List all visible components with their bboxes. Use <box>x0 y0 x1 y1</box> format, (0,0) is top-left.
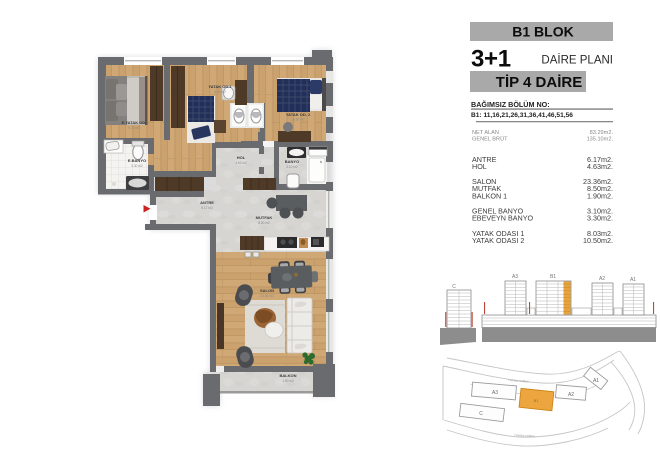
svg-text:A2: A2 <box>568 392 574 398</box>
svg-text:ANTRE: ANTRE <box>200 200 214 205</box>
svg-text:E.BANYO: E.BANYO <box>128 158 146 163</box>
svg-text:10.50m2.: 10.50m2. <box>583 236 613 245</box>
svg-text:A3: A3 <box>512 274 518 280</box>
svg-text:B1: 11,16,21,26,31,36,41,46,51: B1: 11,16,21,26,31,36,41,46,51,56 <box>471 112 573 119</box>
svg-text:83.29m2.: 83.29m2. <box>590 130 614 136</box>
svg-text:MUTFAK: MUTFAK <box>256 215 273 220</box>
svg-text:B1 BLOK: B1 BLOK <box>512 24 573 40</box>
svg-text:3.30m2.: 3.30m2. <box>587 214 613 223</box>
svg-text:3+1: 3+1 <box>471 46 511 73</box>
svg-text:B1: B1 <box>534 399 538 403</box>
svg-text:4.63m2.: 4.63m2. <box>587 162 613 171</box>
svg-text:135.10m2.: 135.10m2. <box>587 137 614 143</box>
svg-text:YATAK ODASI 2: YATAK ODASI 2 <box>472 236 524 245</box>
svg-text:1.90 m2: 1.90 m2 <box>282 379 294 383</box>
svg-text:8.50 m2: 8.50 m2 <box>258 221 270 225</box>
svg-text:1.90m2.: 1.90m2. <box>587 191 613 200</box>
svg-text:BALKON: BALKON <box>279 373 296 378</box>
svg-text:3.30 m2: 3.30 m2 <box>131 164 143 168</box>
svg-text:GENEL BRÜT: GENEL BRÜT <box>472 136 508 143</box>
svg-text:BANYO: BANYO <box>285 159 299 164</box>
svg-text:A3: A3 <box>492 390 498 396</box>
svg-text:3.10 m2: 3.10 m2 <box>286 165 298 169</box>
svg-text:EBEVEYN BANYO: EBEVEYN BANYO <box>472 214 534 223</box>
svg-text:A1: A1 <box>630 277 636 283</box>
svg-text:A2: A2 <box>599 276 605 282</box>
svg-text:B1: B1 <box>550 274 556 280</box>
svg-text:A1: A1 <box>593 378 599 384</box>
svg-text:6.17 m2: 6.17 m2 <box>201 206 213 210</box>
svg-text:NET ALAN: NET ALAN <box>472 130 499 136</box>
svg-text:8.03 m2: 8.03 m2 <box>214 90 226 94</box>
svg-text:10.50 m2: 10.50 m2 <box>291 118 305 122</box>
svg-text:HOL: HOL <box>237 155 246 160</box>
svg-text:C: C <box>479 411 483 417</box>
svg-text:SALON: SALON <box>260 288 274 293</box>
svg-text:BALKON 1: BALKON 1 <box>472 191 507 200</box>
svg-text:BAĞIMSIZ BÖLÜM NO:: BAĞIMSIZ BÖLÜM NO: <box>471 100 550 109</box>
svg-text:YATAK OD.1: YATAK OD.1 <box>208 84 232 89</box>
svg-text:DAİRE PLANI: DAİRE PLANI <box>541 54 613 67</box>
svg-text:C: C <box>452 284 456 290</box>
svg-text:HOL: HOL <box>472 162 487 171</box>
svg-text:TİP 4 DAİRE: TİP 4 DAİRE <box>496 74 582 91</box>
svg-text:4.63 m2: 4.63 m2 <box>235 161 247 165</box>
svg-text:23.36 m2: 23.36 m2 <box>260 294 274 298</box>
svg-text:E.YATAK OD.: E.YATAK OD. <box>122 120 147 125</box>
svg-text:YATAK OD. 2: YATAK OD. 2 <box>286 112 311 117</box>
svg-text:9.20 m2: 9.20 m2 <box>128 126 140 130</box>
